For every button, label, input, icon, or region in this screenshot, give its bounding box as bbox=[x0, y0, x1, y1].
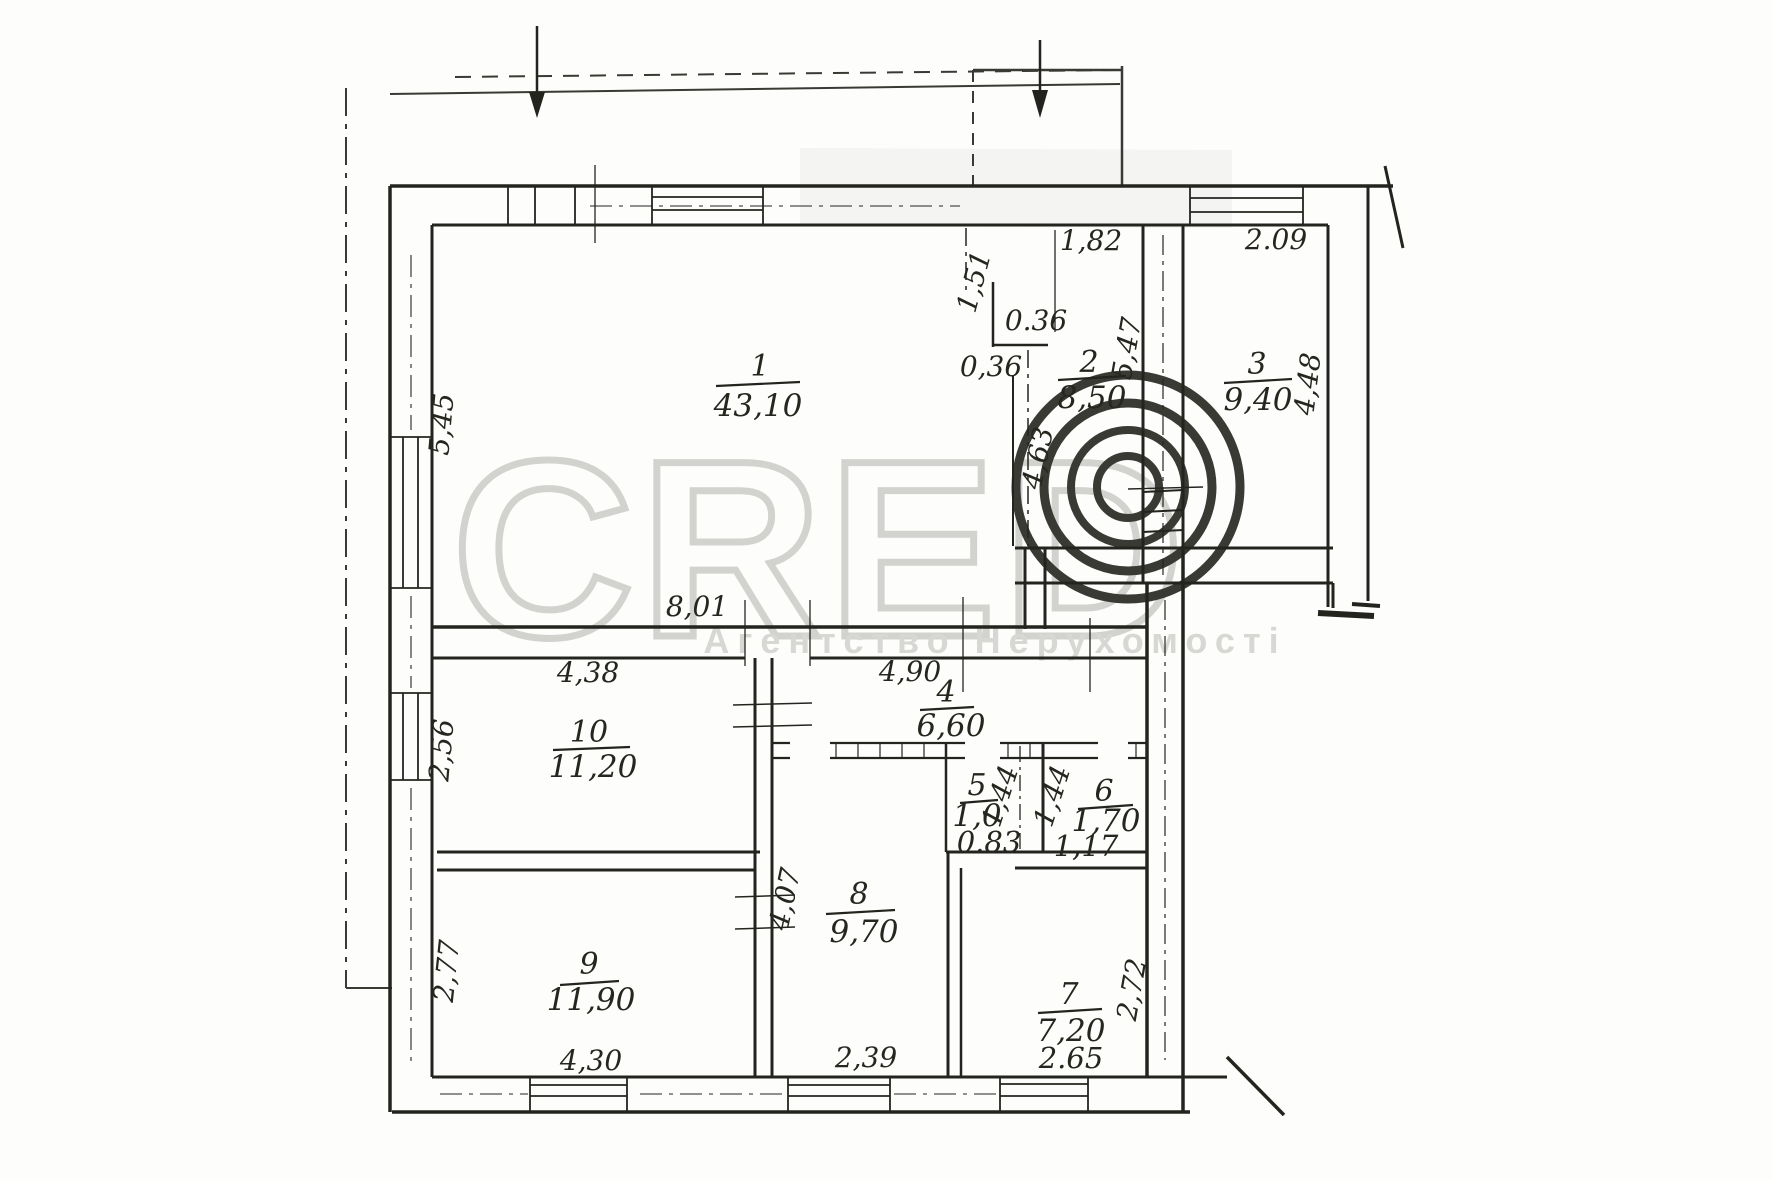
room-label-3: 3 9,40 bbox=[1223, 347, 1292, 418]
room-area: 43,10 bbox=[713, 388, 803, 424]
room-area: 9,40 bbox=[1223, 382, 1292, 418]
room-area: 8,50 bbox=[1057, 380, 1126, 416]
floor-plan-drawing: CRED Агентство Нерухомості bbox=[0, 0, 1772, 1181]
room-label-10: 10 11,20 bbox=[549, 715, 638, 785]
dim-niche-width-upper: 0.36 bbox=[1005, 304, 1067, 337]
entrance-arrow-icon bbox=[529, 26, 545, 118]
room-label-7: 7 7,20 2.65 bbox=[1036, 977, 1105, 1075]
room-area: 11,20 bbox=[549, 749, 638, 785]
room-label-1: 1 43,10 bbox=[713, 349, 803, 424]
entrance-arrow-icon bbox=[1032, 40, 1048, 118]
dim-room3-top: 2.09 bbox=[1244, 223, 1307, 256]
room-number: 3 bbox=[1247, 347, 1266, 382]
dim-niche-depth: 1,51 bbox=[950, 247, 998, 316]
room-number: 1 bbox=[750, 349, 769, 384]
scan-shadow bbox=[800, 148, 1232, 228]
room-number: 2 bbox=[1078, 345, 1098, 380]
room-area: 9,70 bbox=[829, 914, 898, 950]
room-number: 10 bbox=[570, 715, 608, 750]
room-label-9: 9 11,90 bbox=[547, 947, 636, 1018]
room-number: 7 bbox=[1059, 977, 1079, 1012]
room-width-dim: 2.65 bbox=[1038, 1041, 1104, 1075]
dim-corridor-top: 4,90 bbox=[878, 655, 941, 688]
room-area: 6,60 bbox=[916, 708, 985, 744]
watermark: CRED Агентство Нерухомості bbox=[452, 375, 1287, 690]
dim-room9-bottom: 4,30 bbox=[559, 1044, 622, 1077]
dim-room9-left: 2,77 bbox=[427, 938, 466, 1005]
dim-room8-bottom: 2,39 bbox=[834, 1041, 897, 1074]
dim-niche-width-lower: 0,36 bbox=[960, 350, 1022, 383]
dim-room1-bottom: 8,01 bbox=[666, 590, 728, 623]
room-area: 11,90 bbox=[547, 982, 636, 1018]
room-label-8: 8 9,70 bbox=[826, 877, 899, 950]
dim-room1-left: 5,45 bbox=[422, 392, 460, 457]
room-number: 9 bbox=[579, 947, 598, 982]
dim-room8-left: 4,07 bbox=[762, 865, 807, 934]
room-width-dim: 1,17 bbox=[1054, 829, 1119, 863]
floor-plan-page: CRED Агентство Нерухомості bbox=[0, 0, 1772, 1181]
dim-room3-right: 4,48 bbox=[1287, 351, 1327, 418]
dim-room10-left: 2,56 bbox=[422, 718, 460, 784]
dim-room6-height: 1,44 bbox=[1027, 761, 1078, 830]
dim-room2-top: 1,82 bbox=[1060, 224, 1122, 257]
dim-room10-top: 4,38 bbox=[556, 656, 619, 689]
room-width-dim: 0.83 bbox=[957, 825, 1022, 859]
room-number: 8 bbox=[849, 877, 868, 912]
